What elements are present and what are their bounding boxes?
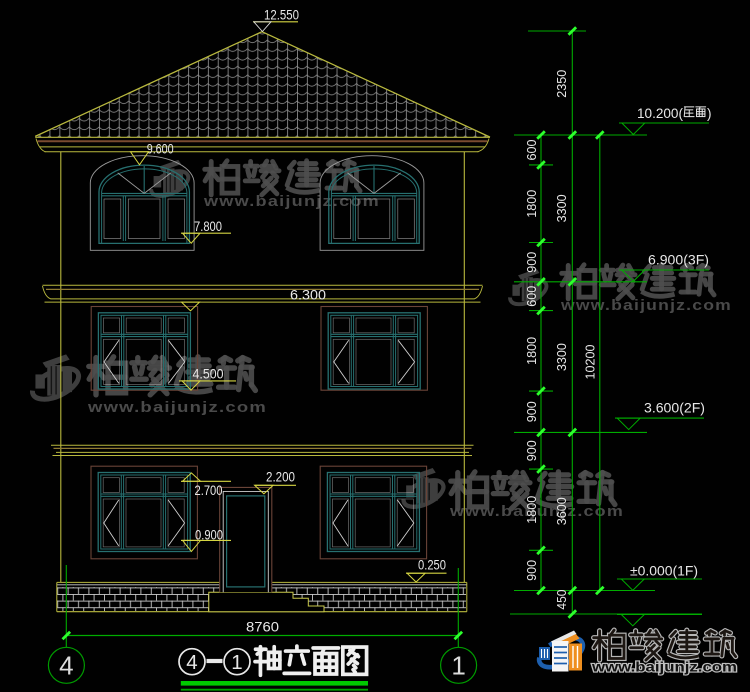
svg-text:3.600(2F): 3.600(2F) bbox=[644, 401, 705, 416]
svg-text:4.500: 4.500 bbox=[193, 367, 224, 382]
svg-text:4: 4 bbox=[186, 651, 197, 674]
svg-text:10200: 10200 bbox=[583, 345, 598, 380]
svg-text:2.700: 2.700 bbox=[195, 483, 223, 498]
svg-text:2350: 2350 bbox=[554, 70, 569, 98]
svg-text:3300: 3300 bbox=[554, 343, 569, 371]
svg-text:900: 900 bbox=[524, 440, 539, 461]
svg-text:1800: 1800 bbox=[524, 190, 539, 218]
svg-text:6.900(3F): 6.900(3F) bbox=[648, 253, 709, 268]
svg-text:10.200(: 10.200( bbox=[637, 106, 683, 121]
svg-text:600: 600 bbox=[524, 140, 539, 161]
svg-text:900: 900 bbox=[524, 401, 539, 422]
svg-text:www.baijunjz.com: www.baijunjz.com bbox=[87, 399, 267, 416]
svg-text:www.baijunjz.com: www.baijunjz.com bbox=[591, 660, 737, 675]
svg-text:±0.000(1F): ±0.000(1F) bbox=[630, 564, 698, 579]
svg-text:0.250: 0.250 bbox=[418, 558, 446, 573]
svg-text:4: 4 bbox=[59, 651, 73, 681]
svg-text:8760: 8760 bbox=[246, 619, 279, 635]
svg-text:7.800: 7.800 bbox=[194, 219, 222, 234]
svg-text:1: 1 bbox=[231, 651, 242, 674]
svg-text:6.300: 6.300 bbox=[290, 288, 326, 303]
svg-text:3600: 3600 bbox=[554, 497, 569, 525]
svg-text:450: 450 bbox=[554, 590, 569, 610]
svg-text:1800: 1800 bbox=[524, 337, 539, 365]
svg-text:12.550: 12.550 bbox=[264, 8, 299, 23]
svg-text:2.200: 2.200 bbox=[266, 470, 295, 485]
svg-text:1800: 1800 bbox=[524, 496, 539, 524]
svg-text:www.baijunjz.com: www.baijunjz.com bbox=[560, 298, 732, 314]
svg-text:600: 600 bbox=[524, 286, 539, 307]
svg-text:900: 900 bbox=[524, 560, 539, 581]
svg-text:): ) bbox=[707, 106, 712, 121]
svg-text:3300: 3300 bbox=[554, 194, 569, 222]
svg-text:1: 1 bbox=[451, 651, 465, 681]
svg-text:9.600: 9.600 bbox=[147, 141, 174, 156]
svg-text:900: 900 bbox=[524, 252, 539, 273]
